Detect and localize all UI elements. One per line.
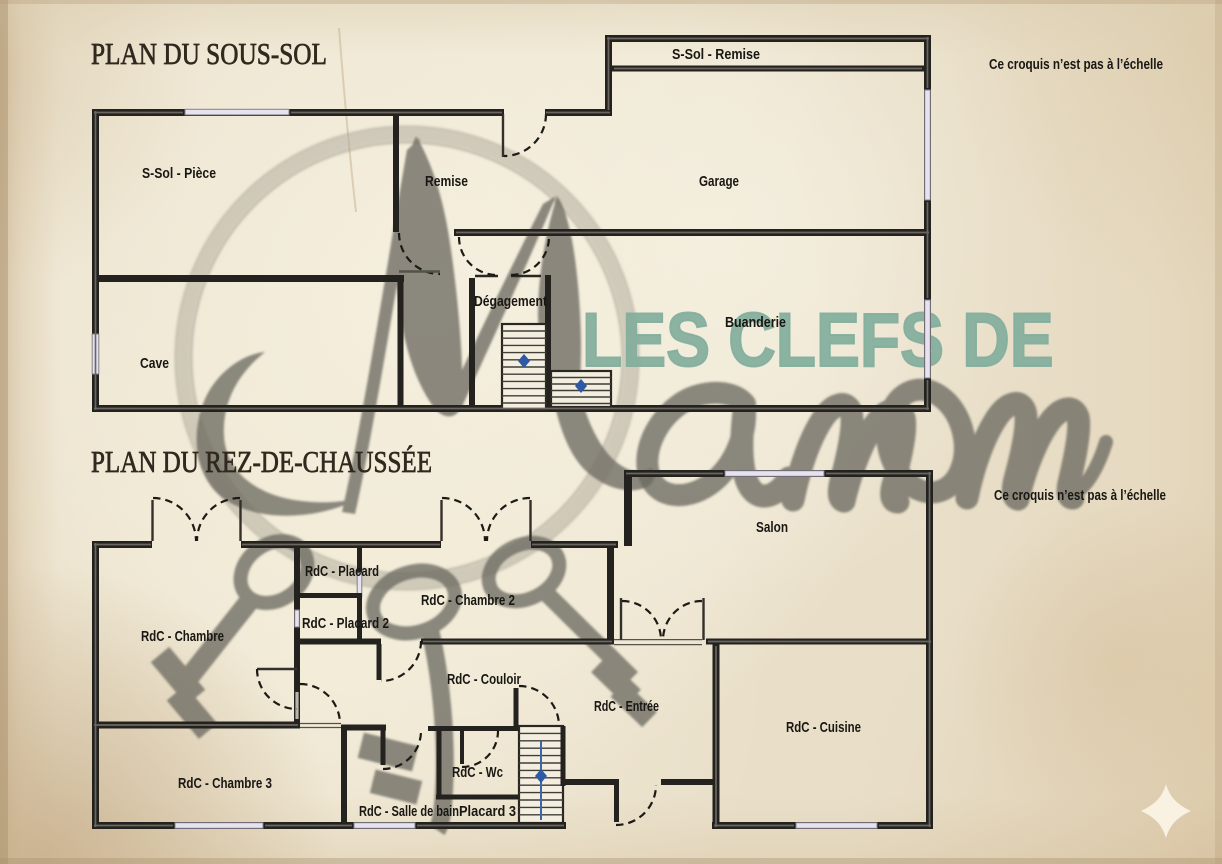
svg-text:S-Sol - Pièce: S-Sol - Pièce — [142, 165, 216, 182]
svg-text:Salon: Salon — [756, 519, 788, 536]
svg-text:Cave: Cave — [140, 355, 169, 372]
svg-text:Garage: Garage — [699, 173, 739, 190]
svg-text:LES CLEFS DE: LES CLEFS DE — [582, 299, 1054, 383]
svg-text:RdC - Couloir: RdC - Couloir — [447, 671, 521, 688]
svg-text:RdC - Salle de bain: RdC - Salle de bain — [359, 803, 459, 820]
svg-text:RdC - Placard: RdC - Placard — [305, 563, 379, 580]
svg-text:RdC - Chambre: RdC - Chambre — [141, 628, 224, 645]
svg-text:RdC - Cuisine: RdC - Cuisine — [786, 719, 861, 736]
svg-text:Dégagement: Dégagement — [474, 293, 547, 310]
svg-text:Ce croquis n’est pas à l’échel: Ce croquis n’est pas à l’échelle — [989, 57, 1163, 73]
svg-text:S-Sol - Remise: S-Sol - Remise — [672, 46, 760, 63]
svg-text:Remise: Remise — [425, 173, 468, 190]
svg-text:Placard 3: Placard 3 — [459, 803, 516, 820]
svg-text:RdC - Chambre 2: RdC - Chambre 2 — [421, 592, 515, 609]
svg-text:Ce croquis n’est pas à l’échel: Ce croquis n’est pas à l’échelle — [994, 488, 1166, 504]
svg-text:RdC - Placard 2: RdC - Placard 2 — [302, 615, 389, 632]
svg-text:RdC - Entrée: RdC - Entrée — [594, 698, 659, 715]
svg-text:Buanderie: Buanderie — [725, 314, 786, 331]
svg-text:RdC - Wc: RdC - Wc — [452, 764, 503, 781]
svg-text:PLAN DU REZ-DE-CHAUSSÉE: PLAN DU REZ-DE-CHAUSSÉE — [91, 444, 432, 479]
svg-text:PLAN DU SOUS-SOL: PLAN DU SOUS-SOL — [91, 36, 327, 71]
svg-text:RdC - Chambre 3: RdC - Chambre 3 — [178, 775, 272, 792]
